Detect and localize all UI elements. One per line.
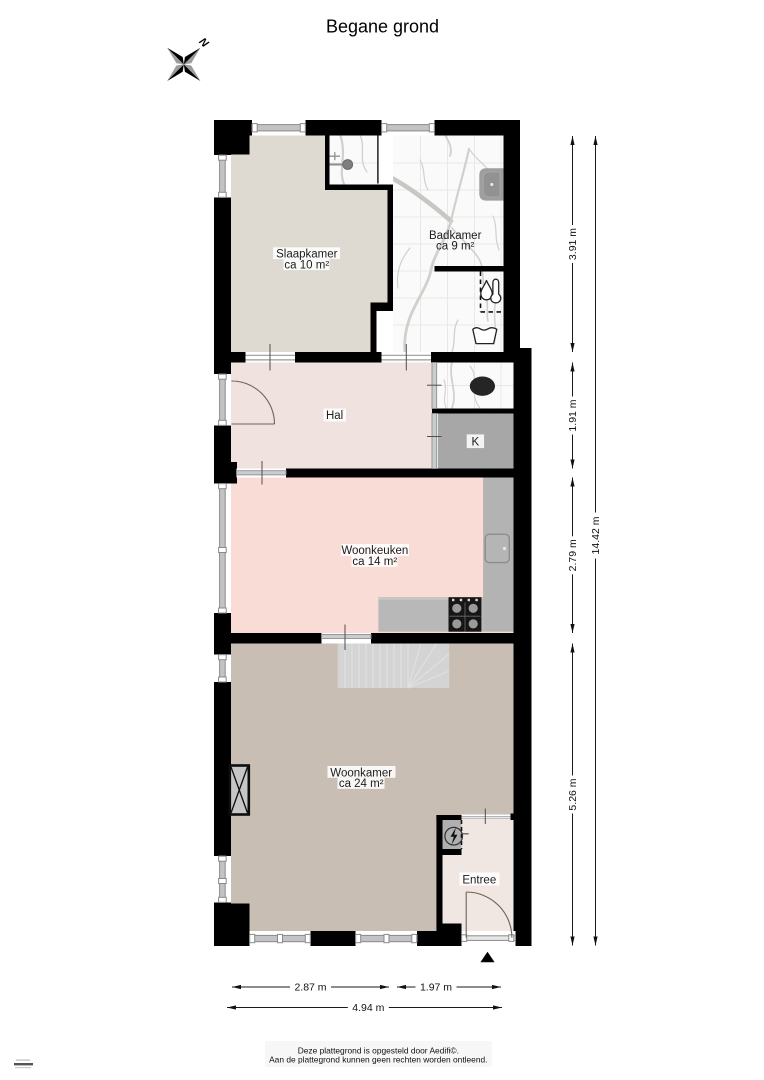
svg-text:1.91 m: 1.91 m <box>567 399 579 431</box>
svg-text:ca 9 m²: ca 9 m² <box>436 241 475 253</box>
svg-text:1.97 m: 1.97 m <box>420 982 452 994</box>
svg-text:ca 24 m²: ca 24 m² <box>339 778 384 790</box>
svg-text:4.94 m: 4.94 m <box>352 1002 384 1014</box>
svg-text:5.26 m: 5.26 m <box>567 778 579 810</box>
svg-text:2.87 m: 2.87 m <box>294 982 326 994</box>
svg-text:Aan de plattegrond kunnen geen: Aan de plattegrond kunnen geen rechten w… <box>269 1055 487 1065</box>
svg-text:2.79 m: 2.79 m <box>567 539 579 571</box>
svg-text:3.91 m: 3.91 m <box>567 228 579 260</box>
svg-text:ca 14 m²: ca 14 m² <box>352 556 397 568</box>
svg-text:Hal: Hal <box>326 410 343 422</box>
svg-text:ca 10 m²: ca 10 m² <box>284 259 329 271</box>
svg-text:Entree: Entree <box>462 875 496 887</box>
svg-text:K: K <box>471 437 479 449</box>
svg-text:14.42 m: 14.42 m <box>590 516 602 554</box>
svg-text:Begane grond: Begane grond <box>326 17 439 37</box>
